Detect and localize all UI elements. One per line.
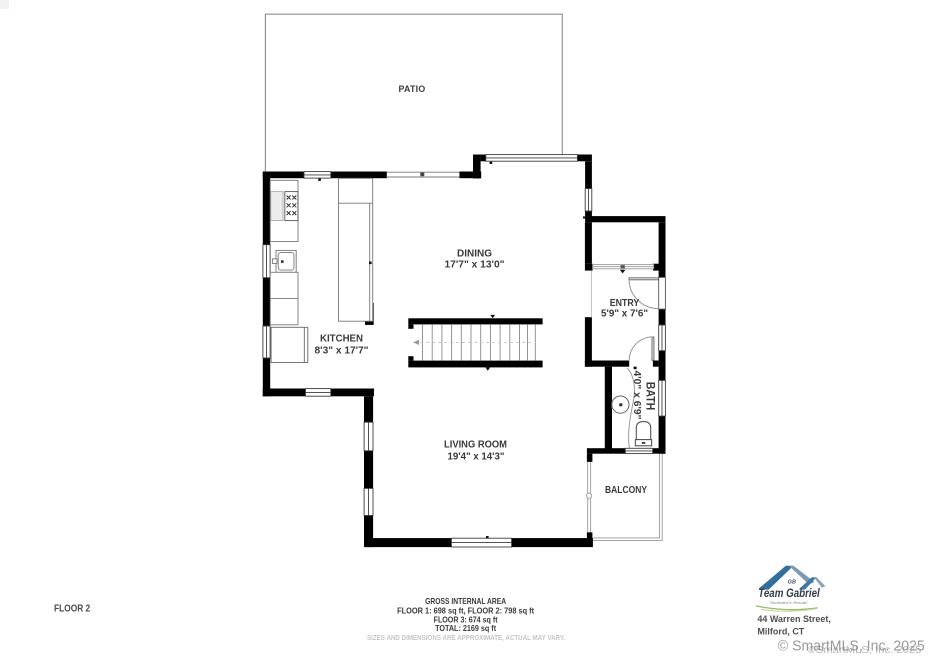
svg-text:TOTAL: 2169 sq ft: TOTAL: 2169 sq ft xyxy=(435,623,496,633)
svg-text:BALCONY: BALCONY xyxy=(605,485,647,496)
svg-text:FLOOR 2: FLOOR 2 xyxy=(54,603,91,614)
svg-text:44 Warren Street,: 44 Warren Street, xyxy=(757,614,831,624)
svg-text:ENTRY: ENTRY xyxy=(610,297,640,309)
svg-text:17'7" x 13'0": 17'7" x 13'0" xyxy=(445,260,505,271)
svg-text:"Dedicated to Results": "Dedicated to Results" xyxy=(769,600,809,605)
svg-text:Milford, CT: Milford, CT xyxy=(757,626,804,636)
svg-text:4'0" x 6'9": 4'0" x 6'9" xyxy=(631,371,642,420)
svg-text:BATH: BATH xyxy=(644,382,656,411)
svg-text:8'3" x 17'7": 8'3" x 17'7" xyxy=(315,346,369,357)
svg-text:GB: GB xyxy=(788,580,796,586)
svg-text:19'4" x 14'3": 19'4" x 14'3" xyxy=(448,451,505,462)
svg-text:LIVING ROOM: LIVING ROOM xyxy=(444,439,507,451)
svg-text:5'9" x 7'6": 5'9" x 7'6" xyxy=(601,309,648,320)
svg-text:PATIO: PATIO xyxy=(399,84,426,95)
svg-text:Team Gabriel: Team Gabriel xyxy=(758,586,820,600)
svg-text:KITCHEN: KITCHEN xyxy=(320,334,363,345)
svg-text:SIZES AND DIMENSIONS ARE APPRO: SIZES AND DIMENSIONS ARE APPROXIMATE, AC… xyxy=(367,633,565,642)
svg-text:© SmartMLS, Inc. 2025: © SmartMLS, Inc. 2025 xyxy=(778,639,925,655)
svg-text:DINING: DINING xyxy=(457,249,492,260)
